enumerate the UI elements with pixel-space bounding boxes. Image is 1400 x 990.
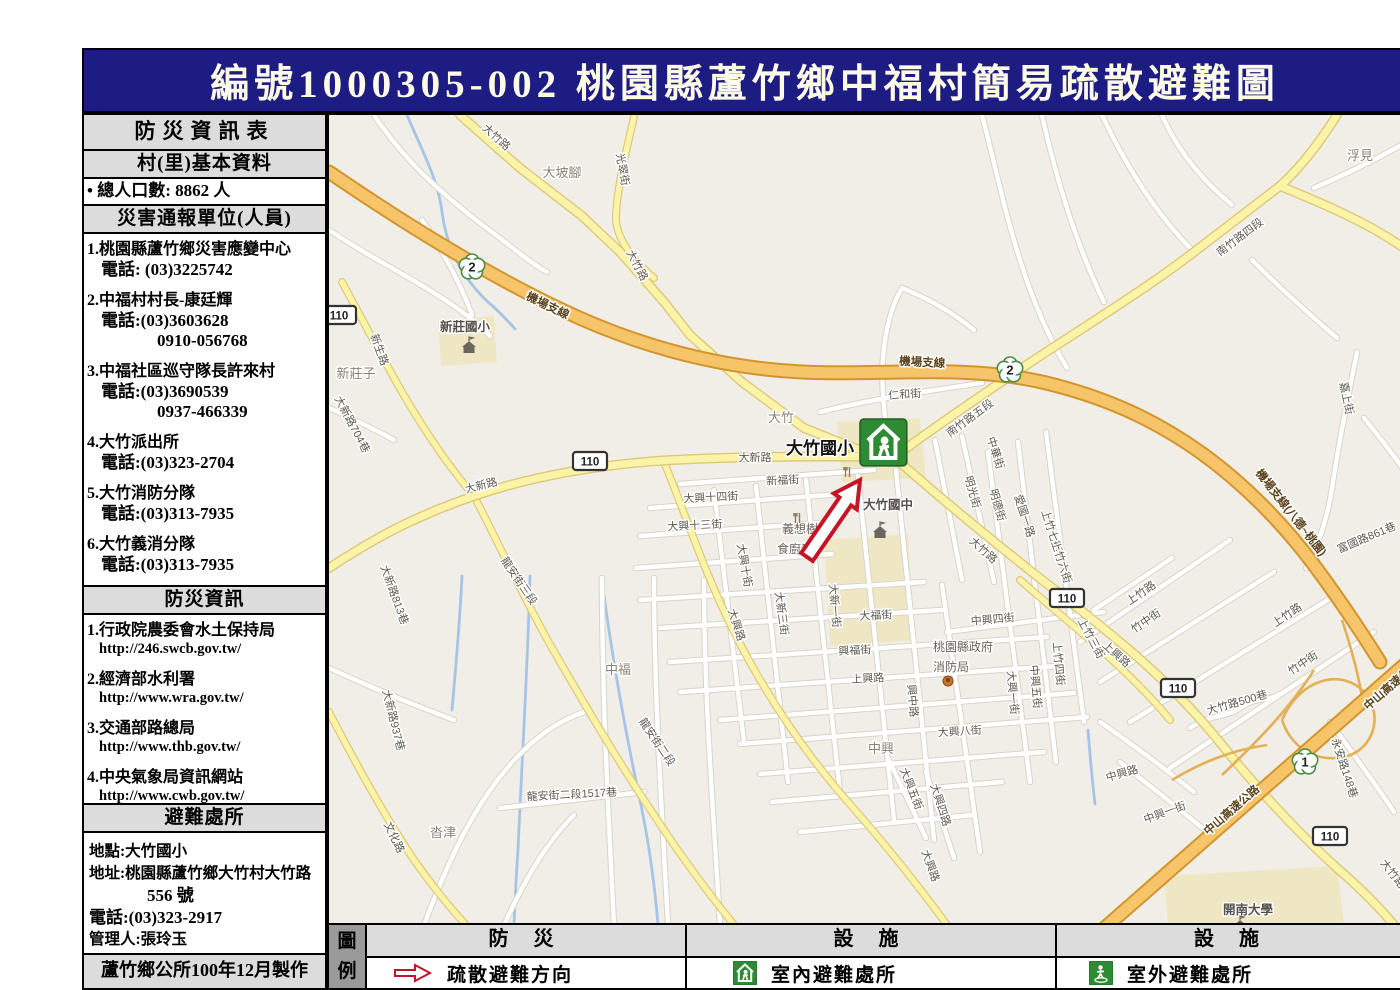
map-label: 大竹國中 xyxy=(863,497,913,512)
link-url: http://246.swcb.gov.tw/ xyxy=(87,640,323,659)
publisher-note: 蘆竹鄉公所100年12月製作 xyxy=(84,955,325,988)
population-row: • 總人口數: 8862 人 xyxy=(84,179,325,206)
contact-item: 6.大竹義消分隊 電話:(03)313-7935 xyxy=(87,535,323,575)
contact-item: 5.大竹消防分隊 電話:(03)313-7935 xyxy=(87,484,323,524)
map-label: 大竹 xyxy=(768,410,794,425)
map-label: 大坡腳 xyxy=(542,165,581,180)
svg-text:2: 2 xyxy=(468,260,475,275)
legend-col-facility-1: 設 施 室內避難處所 xyxy=(687,925,1057,988)
shelter-address-2: 556 號 xyxy=(89,885,323,907)
map-label: 開南大學 xyxy=(1223,902,1274,917)
info-link: 2.經濟部水利署 http://www.wra.gov.tw/ xyxy=(87,670,323,708)
title-banner: 編號1000305-002 桃園縣蘆竹鄉中福村簡易疏散避難圖 xyxy=(82,48,1400,113)
disaster-info-panel: 防災資訊表 村(里)基本資料 • 總人口數: 8862 人 災害通報單位(人員)… xyxy=(82,113,327,990)
contacts-header: 災害通報單位(人員) xyxy=(84,206,325,234)
shelter-location: 地點:大竹國小 xyxy=(89,841,323,863)
legend-item: 室內避難處所 xyxy=(687,958,1055,988)
evacuation-arrow-icon xyxy=(393,963,433,983)
svg-text:110: 110 xyxy=(1058,594,1077,606)
route-110-shield: 110 xyxy=(1161,679,1195,697)
map-label: 中興 xyxy=(868,741,894,756)
outdoor-shelter-icon xyxy=(1089,961,1113,985)
map-label: 新莊子 xyxy=(336,366,375,381)
contact-item: 3.中福社區巡守隊長許來村 電話:(03)3690539 0937-466339 xyxy=(87,362,323,422)
evacuation-map-document: 編號1000305-002 桃園縣蘆竹鄉中福村簡易疏散避難圖 防災資訊表 村(里… xyxy=(40,18,1372,976)
link-url: http://www.wra.gov.tw/ xyxy=(87,689,323,708)
svg-text:110: 110 xyxy=(581,457,600,469)
page-title: 編號1000305-002 桃園縣蘆竹鄉中福村簡易疏散避難圖 xyxy=(210,53,1280,109)
panel-title: 防災資訊表 xyxy=(84,115,325,151)
contact-item: 2.中福村村長-康廷輝 電話:(03)3603628 0910-056768 xyxy=(87,291,323,351)
route-110-shield: 110 xyxy=(1313,827,1347,845)
map-label: 消防局 xyxy=(933,659,969,674)
legend-col-disaster: 防 災 疏散避難方向 xyxy=(367,925,687,988)
map-label: 沓津 xyxy=(430,825,456,840)
contacts-list: 1.桃園縣蘆竹鄉災害應變中心 電話: (03)3225742 2.中福村村長-康… xyxy=(84,234,325,587)
map-label: 中福 xyxy=(605,662,631,677)
indoor-shelter-map-icon xyxy=(860,419,907,466)
indoor-shelter-icon xyxy=(733,961,757,985)
link-url: http://www.thb.gov.tw/ xyxy=(87,738,323,757)
fire-icon xyxy=(943,676,953,686)
legend-corner: 圖 例 xyxy=(329,925,367,988)
legend-item: 疏散避難方向 xyxy=(367,958,685,988)
map-label: 浮見 xyxy=(1347,148,1373,163)
map-legend: 圖 例 防 災 疏散避難方向 設 施 室內避難處所 xyxy=(327,923,1400,990)
evacuation-map: 大竹路光翠街大坡腳大竹路機場支線機場支線新生路新莊子新莊國小南竹路四段浮見南竹路… xyxy=(329,115,1400,990)
svg-text:110: 110 xyxy=(1321,832,1340,844)
map-canvas: 大竹路光翠街大坡腳大竹路機場支線機場支線新生路新莊子新莊國小南竹路四段浮見南竹路… xyxy=(327,113,1400,990)
svg-text:110: 110 xyxy=(330,311,349,323)
route-110-shield: 110 xyxy=(1050,589,1084,607)
shelter-address: 地址:桃園縣蘆竹鄉大竹村大竹路 xyxy=(89,863,323,885)
map-label: 大竹國小 xyxy=(786,438,854,458)
link-url: http://www.cwb.gov.tw/ xyxy=(87,787,323,805)
shelter-phone: 電話:(03)323-2917 xyxy=(89,907,323,929)
svg-text:2: 2 xyxy=(1006,363,1013,378)
map-label: 新莊國小 xyxy=(440,319,491,334)
route-110-shield: 110 xyxy=(573,452,607,470)
contact-item: 4.大竹派出所 電話:(03)323-2704 xyxy=(87,433,323,473)
shelter-details: 地點:大竹國小 地址:桃園縣蘆竹鄉大竹村大竹路 556 號 電話:(03)323… xyxy=(84,833,325,955)
info-link: 1.行政院農委會水土保持局 http://246.swcb.gov.tw/ xyxy=(87,621,323,659)
contact-item: 1.桃園縣蘆竹鄉災害應變中心 電話: (03)3225742 xyxy=(87,240,323,280)
map-label: 大新路 xyxy=(739,450,772,464)
basic-data-header: 村(里)基本資料 xyxy=(84,151,325,179)
info-link: 3.交通部路總局 http://www.thb.gov.tw/ xyxy=(87,719,323,757)
shelter-header: 避難處所 xyxy=(84,805,325,833)
legend-item: 室外避難處所 xyxy=(1057,958,1400,988)
map-label: 上興路 xyxy=(851,671,885,686)
info-links-list: 1.行政院農委會水土保持局 http://246.swcb.gov.tw/ 2.… xyxy=(84,615,325,805)
info-links-header: 防災資訊 xyxy=(84,587,325,615)
shelter-manager: 管理人:張玲玉 xyxy=(89,929,323,951)
legend-col-facility-2: 設 施 室外避難處所 xyxy=(1057,925,1400,988)
svg-text:1: 1 xyxy=(1301,755,1308,770)
info-link: 4.中央氣象局資訊網站 http://www.cwb.gov.tw/ xyxy=(87,768,323,805)
svg-text:110: 110 xyxy=(1169,684,1188,696)
map-label: 桃園縣政府 xyxy=(933,639,993,654)
route-110-shield: 110 xyxy=(329,306,356,324)
